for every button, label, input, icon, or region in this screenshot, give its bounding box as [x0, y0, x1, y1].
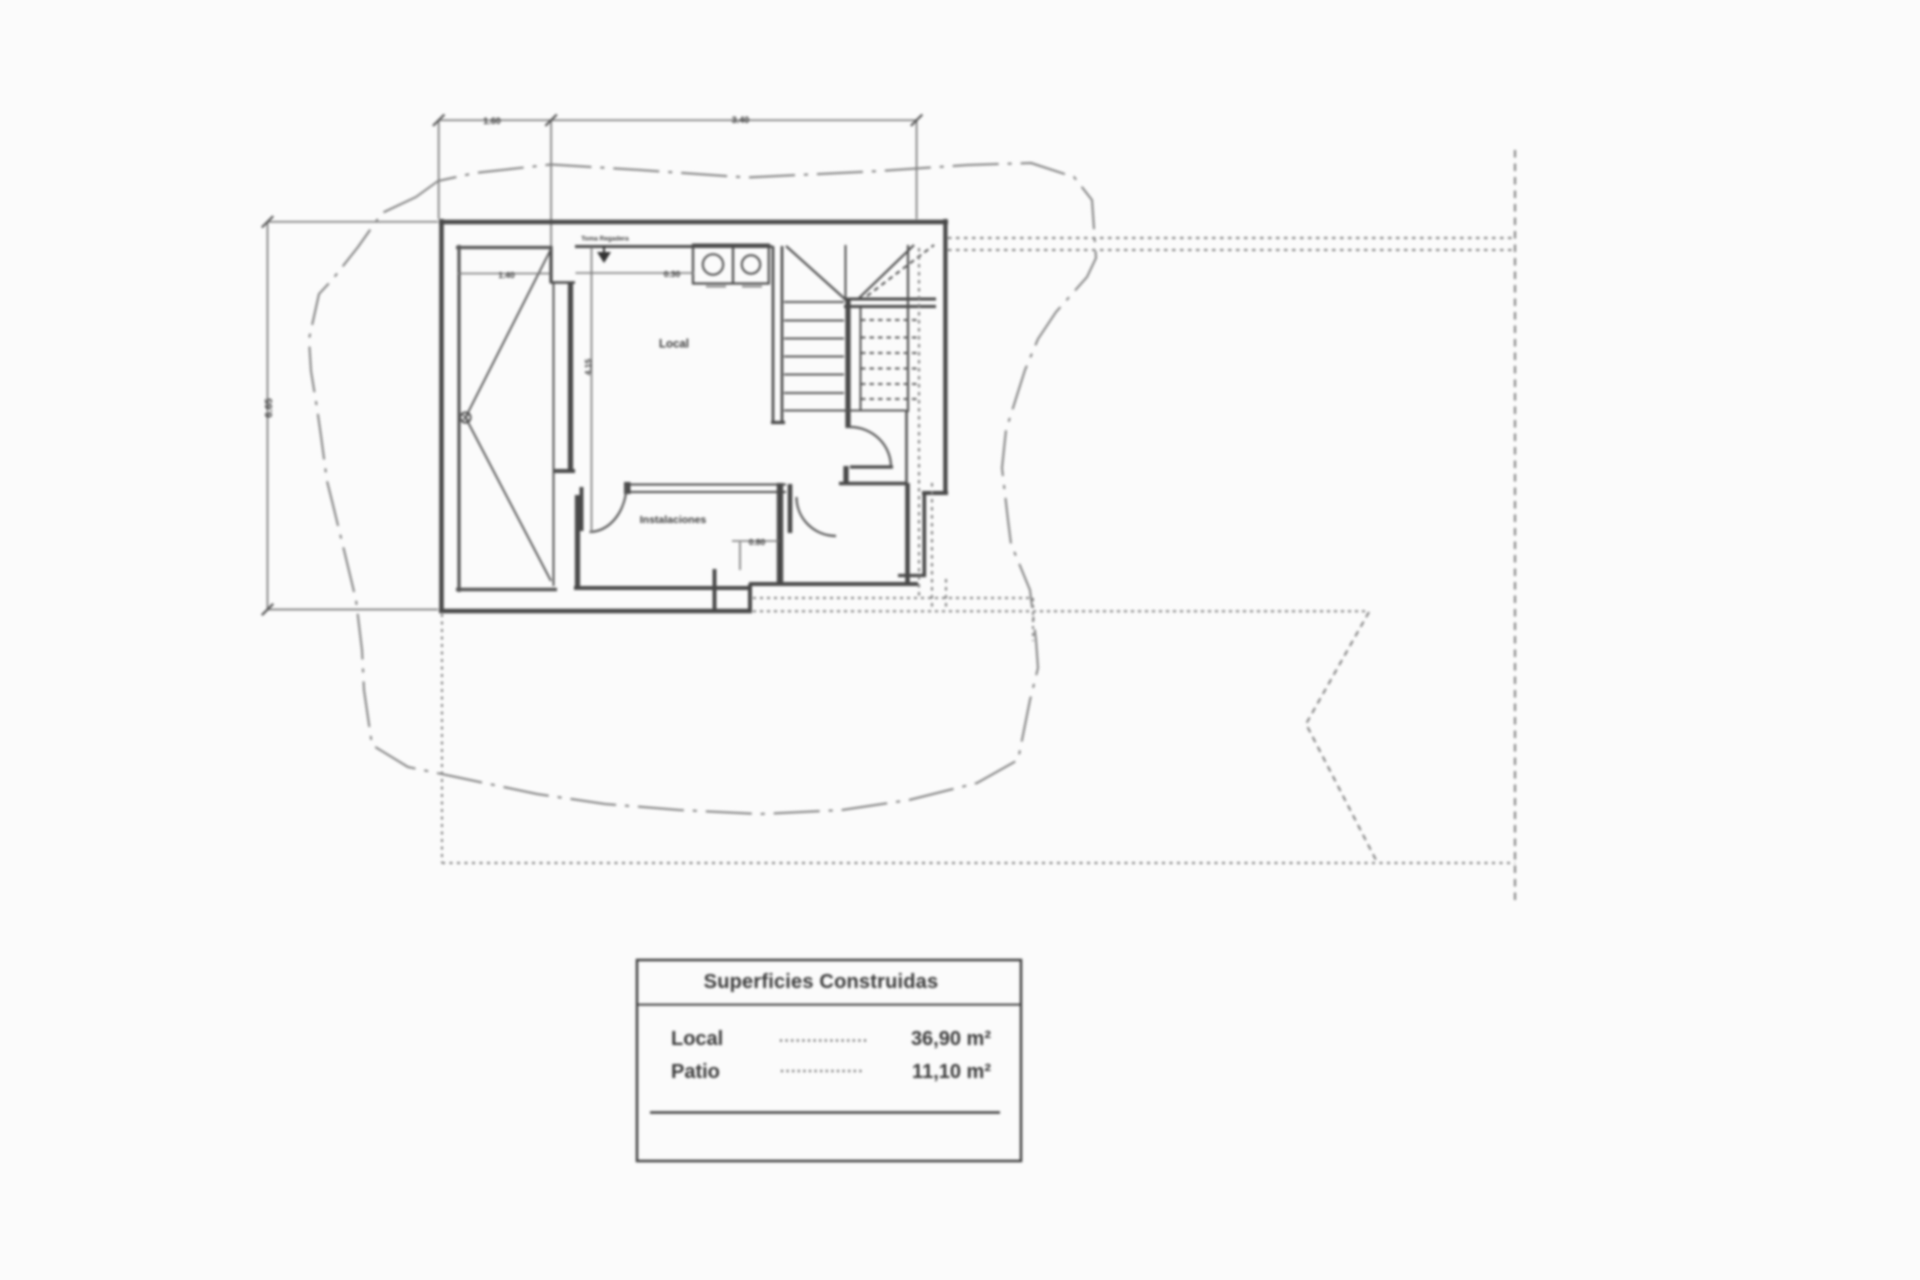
svg-text:Superficies Construidas: Superficies Construidas [704, 971, 939, 993]
svg-text:11,10 m²: 11,10 m² [912, 1061, 991, 1083]
svg-text:Patio: Patio [671, 1061, 720, 1083]
svg-text:Instalaciones: Instalaciones [640, 514, 707, 526]
svg-text:0.80: 0.80 [749, 537, 766, 547]
svg-text:4.15: 4.15 [583, 358, 593, 375]
svg-text:1.40: 1.40 [498, 270, 515, 280]
svg-text:6.65: 6.65 [264, 398, 275, 418]
svg-text:Local: Local [671, 1028, 723, 1050]
svg-text:36,90 m²: 36,90 m² [911, 1028, 991, 1050]
svg-text:Local: Local [659, 339, 689, 351]
svg-text:Toma Regadera: Toma Regadera [581, 236, 629, 243]
svg-text:1.60: 1.60 [483, 116, 501, 126]
svg-text:0.30: 0.30 [664, 269, 681, 279]
svg-text:3.40: 3.40 [732, 115, 750, 125]
